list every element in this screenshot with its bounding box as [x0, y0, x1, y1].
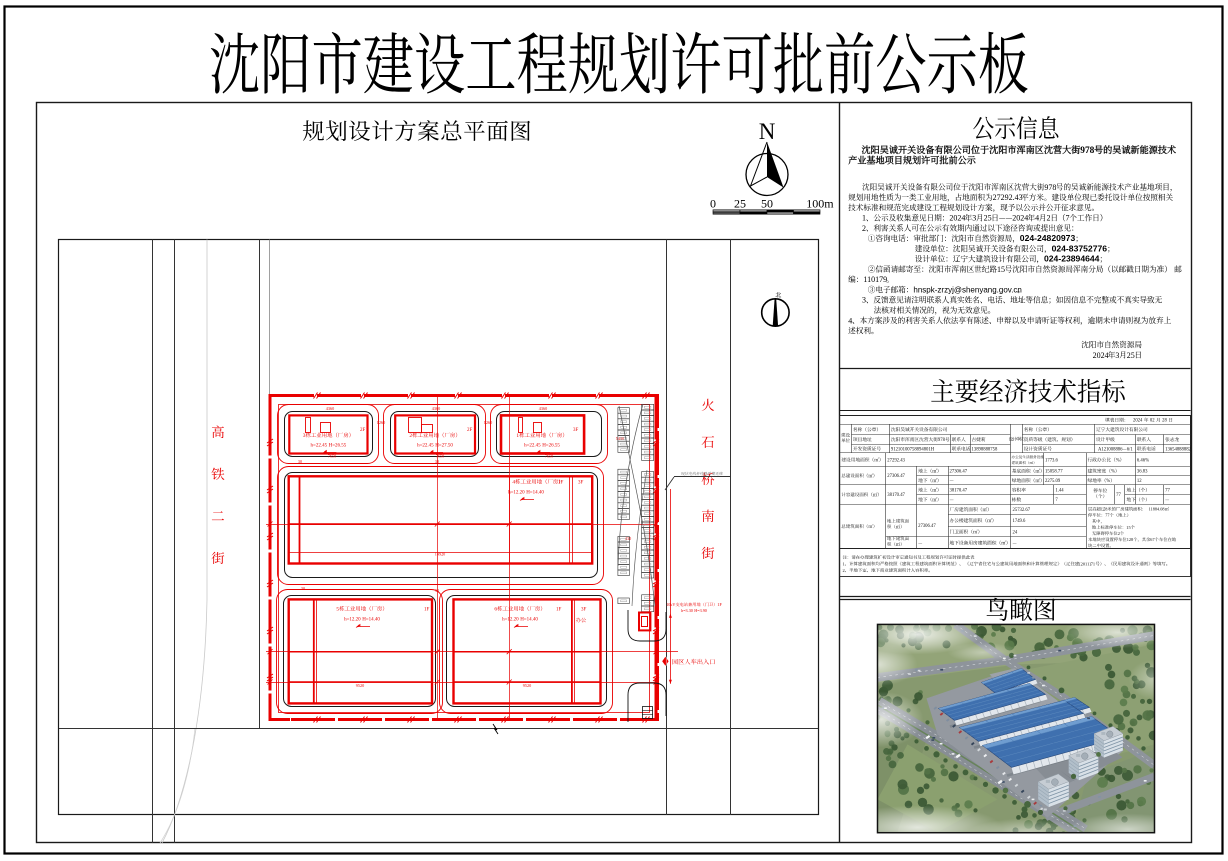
- svg-text:02: 02: [1150, 419, 1155, 424]
- svg-text:978: 978: [1080, 146, 1094, 156]
- svg-text:h=22.45: h=22.45: [524, 444, 541, 449]
- svg-text:15058.77: 15058.77: [1045, 470, 1063, 475]
- svg-text:1: 1: [862, 214, 866, 223]
- svg-text:4: 4: [1035, 214, 1039, 223]
- svg-text:3: 3: [862, 296, 866, 305]
- svg-text:H=27.50: H=27.50: [435, 444, 453, 449]
- svg-text:6.46%: 6.46%: [1137, 458, 1149, 463]
- svg-text:5: 5: [336, 607, 339, 613]
- svg-text:%: %: [1111, 470, 1115, 475]
- svg-text:1: 1: [843, 561, 845, 566]
- svg-text:30: 30: [301, 586, 305, 591]
- svg-text:2: 2: [1047, 214, 1051, 223]
- svg-text:%: %: [1116, 458, 1120, 463]
- svg-text:2024: 2024: [1133, 419, 1143, 424]
- svg-text:3F: 3F: [581, 608, 587, 613]
- svg-text:024-23894644: 024-23894644: [1044, 254, 1100, 264]
- svg-text:H=14.40: H=14.40: [526, 491, 544, 496]
- svg-text:36.83: 36.83: [1137, 470, 1148, 475]
- svg-text:h=22.45: h=22.45: [311, 444, 328, 449]
- svg-text:7650: 7650: [436, 454, 444, 459]
- svg-text:1260: 1260: [484, 420, 492, 425]
- svg-text:N: N: [759, 119, 776, 144]
- svg-text:30: 30: [435, 588, 439, 593]
- svg-text:%: %: [1106, 479, 1110, 484]
- svg-text:2024: 2024: [1093, 351, 1109, 360]
- svg-text:h=12.20: h=12.20: [502, 618, 519, 623]
- svg-text:30: 30: [435, 459, 439, 464]
- svg-text:3: 3: [303, 433, 306, 439]
- svg-text:2F: 2F: [467, 428, 473, 433]
- svg-text:4360: 4360: [432, 406, 440, 411]
- svg-text:H=26.55: H=26.55: [329, 444, 347, 449]
- svg-text:13898888758: 13898888758: [972, 447, 998, 452]
- svg-text:h=22.45: h=22.45: [417, 444, 434, 449]
- svg-text:77: 77: [1116, 493, 1121, 498]
- svg-text:hnspk-zrzyj@shenyang.gov.cn: hnspk-zrzyj@shenyang.gov.cn: [913, 286, 1021, 295]
- svg-text:h=12.20: h=12.20: [508, 491, 525, 496]
- svg-text:[2011]71: [2011]71: [1079, 561, 1095, 566]
- svg-text:100m: 100m: [806, 197, 834, 211]
- svg-text:6: 6: [494, 607, 497, 613]
- svg-text:27292.43: 27292.43: [993, 193, 1023, 202]
- svg-text:27306.47: 27306.47: [950, 470, 968, 475]
- svg-text:H=3.90: H=3.90: [694, 608, 707, 613]
- svg-text:3: 3: [972, 214, 976, 223]
- svg-text:2: 2: [1118, 531, 1120, 536]
- svg-text:14920: 14920: [435, 552, 445, 557]
- svg-text:978: 978: [938, 438, 946, 443]
- svg-text:1773.6: 1773.6: [1045, 458, 1059, 463]
- svg-text:15: 15: [997, 265, 1005, 274]
- svg-text:11884.08: 11884.08: [1149, 507, 1165, 512]
- svg-text:1: 1: [516, 433, 519, 439]
- svg-text:25: 25: [1127, 351, 1135, 360]
- svg-text:2: 2: [862, 224, 866, 233]
- svg-text:024-83752776: 024-83752776: [1052, 244, 1108, 254]
- svg-text:128: 128: [1127, 537, 1133, 542]
- svg-text:50: 50: [761, 197, 773, 211]
- svg-text:1749.6: 1749.6: [1013, 519, 1027, 524]
- svg-text:7650: 7650: [328, 454, 336, 459]
- svg-text:7650: 7650: [545, 454, 553, 459]
- svg-text:1F: 1F: [558, 481, 564, 486]
- svg-text:13654888882: 13654888882: [1165, 447, 1191, 452]
- svg-text:3F: 3F: [578, 481, 584, 486]
- svg-text:1260: 1260: [377, 420, 385, 425]
- svg-text:3: 3: [1115, 351, 1119, 360]
- svg-text:9520: 9520: [356, 683, 364, 688]
- svg-text:2024: 2024: [949, 214, 965, 223]
- svg-text:h=12.20: h=12.20: [344, 618, 361, 623]
- svg-text:25732.67: 25732.67: [1013, 508, 1031, 513]
- svg-text:H=14.40: H=14.40: [362, 618, 380, 623]
- svg-text:3F: 3F: [573, 428, 579, 433]
- svg-text:H=14.40: H=14.40: [520, 618, 538, 623]
- svg-text:024-24820973: 024-24820973: [1020, 233, 1076, 243]
- svg-text:110179: 110179: [863, 275, 887, 284]
- svg-text:2275.09: 2275.09: [1045, 479, 1061, 484]
- svg-text:27292.43: 27292.43: [887, 458, 905, 463]
- svg-text:h=3.30: h=3.30: [681, 608, 693, 613]
- svg-text:4: 4: [512, 480, 515, 486]
- svg-text:4360: 4360: [326, 406, 334, 411]
- svg-text:12: 12: [1137, 479, 1142, 484]
- svg-text:2: 2: [843, 568, 845, 573]
- svg-text:A121008886: A121008886: [1098, 447, 1123, 452]
- svg-text:H=26.55: H=26.55: [542, 444, 560, 449]
- svg-text:6/1: 6/1: [1127, 447, 1134, 452]
- svg-text:25: 25: [734, 197, 746, 211]
- svg-text:2F: 2F: [360, 428, 366, 433]
- svg-text:9520: 9520: [523, 683, 531, 688]
- svg-text:15: 15: [1126, 525, 1130, 530]
- svg-text:7: 7: [1066, 214, 1070, 223]
- svg-text:2024: 2024: [1012, 214, 1028, 223]
- svg-text:77: 77: [1165, 489, 1170, 494]
- svg-text:0: 0: [710, 197, 716, 211]
- svg-text:1F: 1F: [424, 608, 430, 613]
- svg-text:1.44: 1.44: [1055, 489, 1064, 494]
- svg-text:25: 25: [984, 214, 992, 223]
- svg-text:4360: 4360: [539, 406, 547, 411]
- svg-text:8: 8: [1105, 507, 1107, 512]
- svg-text:1F: 1F: [717, 602, 722, 607]
- svg-text:27306.47: 27306.47: [887, 474, 905, 479]
- svg-text:30: 30: [298, 459, 302, 464]
- svg-text:2: 2: [409, 433, 412, 439]
- svg-text:1F: 1F: [556, 608, 562, 613]
- svg-text:27306.47: 27306.47: [918, 524, 936, 529]
- svg-text:24: 24: [1013, 530, 1018, 535]
- svg-text:38170.47: 38170.47: [887, 493, 905, 498]
- svg-text:28: 28: [1162, 419, 1167, 424]
- svg-text:978: 978: [1044, 183, 1056, 192]
- svg-text:38170.47: 38170.47: [950, 489, 968, 494]
- svg-text:91210100758894801H: 91210100758894801H: [891, 447, 935, 452]
- svg-text:4: 4: [848, 316, 852, 325]
- svg-text:5430: 5430: [616, 436, 624, 441]
